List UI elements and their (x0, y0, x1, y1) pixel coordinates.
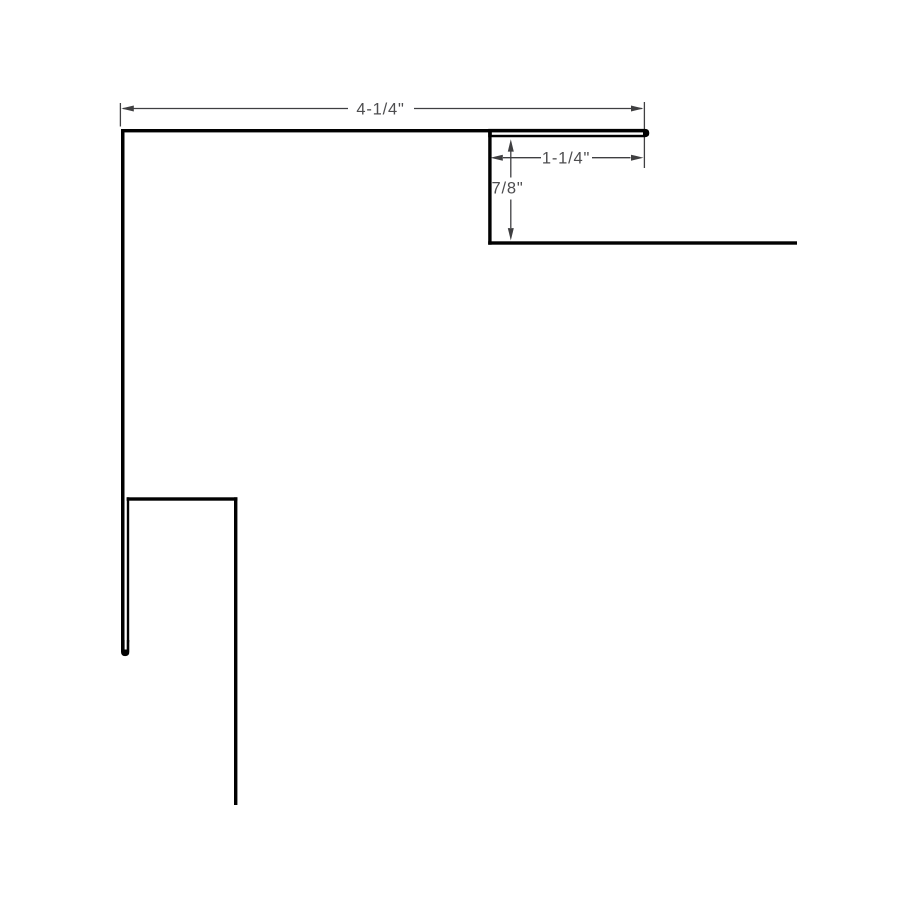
mid-drop-line (234, 497, 237, 805)
arrow-left-icon (121, 106, 134, 112)
left-hem-slot (125, 501, 127, 650)
arrow-up-icon (508, 139, 514, 151)
dim-label-hem-width: 1-1/4" (542, 150, 590, 168)
dimension-drop-height: 7/8" (492, 139, 524, 240)
dim-label-drop-height: 7/8" (492, 180, 524, 198)
arrow-right-icon (631, 155, 644, 161)
left-hem-return-line (127, 497, 130, 642)
trim-profile-outline (121, 129, 797, 805)
arrow-right-icon (631, 106, 644, 112)
top-face-line (121, 129, 501, 132)
bottom-right-leg-line (488, 241, 797, 244)
left-face-line (121, 129, 125, 643)
right-drop-line (488, 131, 491, 245)
dimension-hem-width: 1-1/4" (490, 150, 643, 168)
arrow-down-icon (508, 228, 514, 240)
top-hem-slot (492, 132, 643, 134)
drawing-canvas: 4-1/4" 1-1/4" 7/8" (0, 0, 919, 917)
arrow-left-icon (490, 155, 503, 161)
mid-shelf-line (127, 497, 238, 500)
dim-label-top-width: 4-1/4" (356, 100, 404, 118)
dimension-annotations: 4-1/4" 1-1/4" 7/8" (120, 100, 644, 240)
